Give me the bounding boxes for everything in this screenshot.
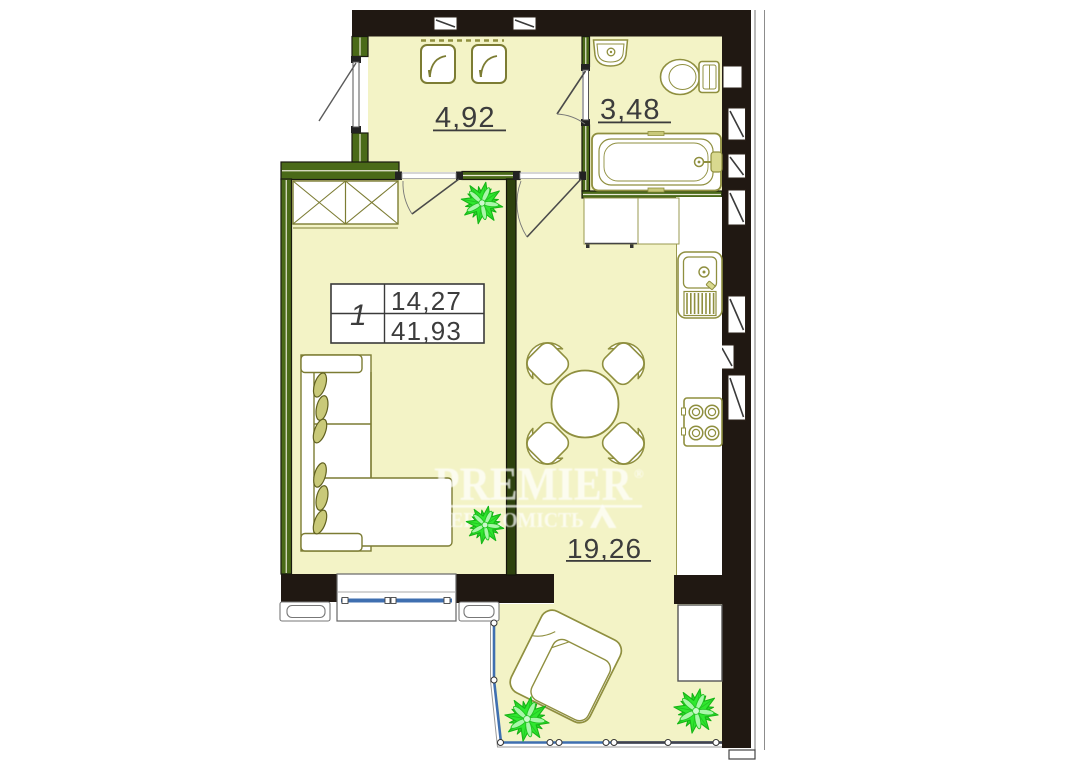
svg-text:19,26: 19,26 [567, 533, 642, 564]
svg-text:PREMIER: PREMIER [434, 458, 633, 511]
svg-text:14,27: 14,27 [391, 286, 462, 316]
svg-text:1: 1 [350, 299, 367, 332]
svg-text:НЕРУХОМІСТЬ: НЕРУХОМІСТЬ [435, 508, 584, 532]
svg-text:41,93: 41,93 [391, 316, 462, 346]
svg-text:®: ® [634, 466, 644, 481]
svg-text:3,48: 3,48 [600, 94, 660, 126]
svg-text:4,92: 4,92 [435, 102, 495, 134]
